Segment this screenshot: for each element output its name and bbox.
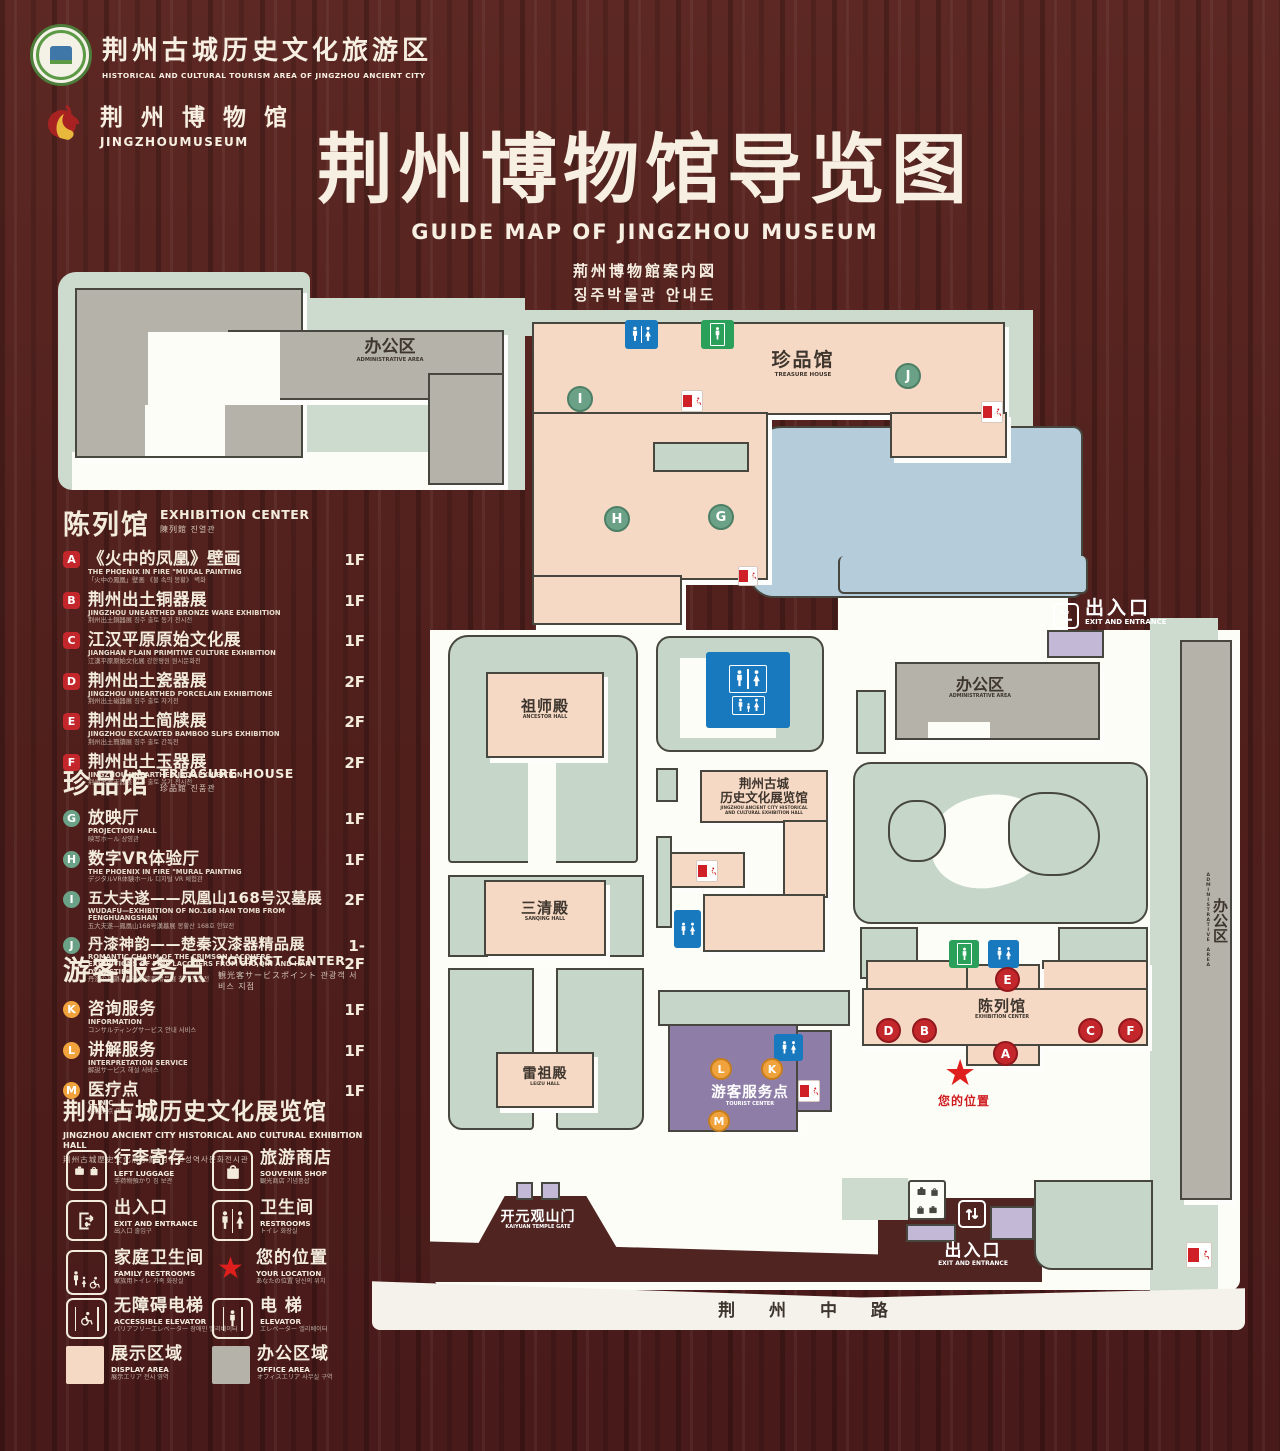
- legend-item-B: B 荆州出土铜器展JINGZHOU UNEARTHED BRONZE WARE …: [63, 591, 365, 626]
- map-marker-H: H: [604, 506, 630, 532]
- museum-logo: [40, 94, 92, 146]
- legend-item-D: D 荆州出土瓷器展JINGZHOU UNEARTHED PORCELAIN EX…: [63, 672, 365, 707]
- section-title-tourist: 游客服务点: [63, 949, 208, 988]
- legend-restrooms: 卫生间RESTROOMSトイレ 화장실: [212, 1200, 362, 1241]
- page-title-ja: 荊州博物館案内図: [250, 260, 1040, 281]
- legend-item-G: G 放映厅PROJECTION HALL映写ホール 상영관 1F: [63, 809, 365, 844]
- restrooms-family-sign: [706, 652, 790, 728]
- building-treasure-bottom-step: [532, 575, 682, 625]
- item-badge: A: [63, 551, 80, 568]
- garden-island: [1008, 792, 1100, 876]
- label-leizu-hall: 雷祖殿 LEIZU HALL: [498, 1066, 592, 1087]
- legend-your-location: ★ 您的位置YOUR LOCATIONあなたの位置 당신의 위치: [212, 1250, 362, 1287]
- your-location-icon: ★: [944, 1056, 976, 1092]
- accessible-elevator-icon: [981, 401, 1003, 423]
- legend-item-K: K 咨询服务INFORMATIONコンサルティングサービス 안내 서비스 1F: [63, 1000, 365, 1035]
- label-road: 荆 州 中 路: [660, 1296, 960, 1321]
- map-marker-M: M: [708, 1110, 730, 1132]
- legend-item-L: L 讲解服务INTERPRETATION SERVICE解説サービス 해설 서비…: [63, 1041, 365, 1076]
- office-area-swatch: [212, 1346, 250, 1384]
- hall-title-en: JINGZHOU ANCIENT CITY HISTORICAL AND CUL…: [63, 1130, 383, 1150]
- mint-block-exit-right: [1034, 1180, 1153, 1270]
- family-restrooms-icon: [732, 696, 765, 715]
- page-title: 荆州博物馆导览图: [250, 108, 1040, 218]
- legend-item-H: H 数字VR体验厅THE PHOENIX IN FIRE "MURAL PAIN…: [63, 850, 365, 885]
- legend-family-restrooms: 家庭卫生间FAMILY RESTROOMS家族用トイレ 가족 화장실: [66, 1250, 216, 1295]
- display-area-swatch: [66, 1346, 104, 1384]
- tourism-area-name-en: HISTORICAL AND CULTURAL TOURISM AREA OF …: [102, 71, 432, 80]
- label-ancestor-hall: 祖师殿 ANCESTOR HALL: [488, 698, 602, 721]
- label-exit-top: 出入口 EXIT AND ENTRANCE: [1085, 598, 1205, 627]
- exit-entrance-icon: [1053, 603, 1079, 629]
- entrance-gate-block: [906, 1224, 956, 1242]
- page-title-en: GUIDE MAP OF JINGZHOU MUSEUM: [250, 220, 1040, 244]
- tourism-area-logo: [30, 24, 92, 86]
- legend-accessible-elevator: 无障碍电梯ACCESSIBLE ELEVATORバリアフリーエレベーター 장애인…: [66, 1298, 216, 1339]
- map-marker-E: E: [995, 967, 1020, 992]
- corridor-ancestor: [528, 752, 556, 864]
- pond-lower: [838, 556, 1088, 594]
- legend-item-C: C 江汉平原原始文化展JIANGHAN PLAIN PRIMITIVE CULT…: [63, 631, 365, 666]
- hall-title-zh: 荆州古城历史文化展览馆: [63, 1092, 383, 1126]
- left-luggage-icon: [66, 1150, 107, 1191]
- mint-corner-exit: [842, 1178, 908, 1220]
- souvenir-shop-icon: [212, 1150, 253, 1191]
- accessible-elevator-icon: [1186, 1242, 1212, 1268]
- mint-block-mid: [653, 442, 749, 472]
- map-marker-K: K: [761, 1058, 783, 1080]
- section-title-exhibition-sub: 陳列館 진열관: [160, 524, 309, 535]
- mint-corner-exh: [656, 768, 678, 802]
- building-exhibition-hall-bottom: [703, 894, 825, 952]
- entrance-gate-block: [1047, 630, 1104, 658]
- label-treasure-house: 珍品馆 TREASURE HOUSE: [745, 350, 861, 378]
- map-marker-G: G: [708, 504, 734, 530]
- section-title-exhibition: 陈列馆: [63, 503, 150, 542]
- elevator-icon: [949, 940, 979, 968]
- family-restrooms-icon: [66, 1250, 107, 1295]
- map-marker-C: C: [1078, 1018, 1103, 1043]
- legend-left-luggage: 行李寄存LEFT LUGGAGE手荷物預かり 짐 보관: [66, 1150, 216, 1191]
- legend-exhibition-section: 陈列馆 EXHIBITION CENTER 陳列館 진열관 A 《火中的凤凰》壁…: [63, 503, 365, 793]
- section-title-treasure: 珍品馆: [63, 762, 150, 801]
- map-marker-D: D: [876, 1018, 901, 1043]
- label-your-location: 您的位置: [922, 1092, 1006, 1109]
- mint-block-tourist-top: [658, 990, 850, 1026]
- map-marker-J: J: [895, 363, 921, 389]
- your-location-icon: ★: [212, 1250, 249, 1287]
- building-treasure-left-wing: [532, 412, 768, 580]
- map-marker-A: A: [993, 1041, 1018, 1066]
- map-marker-B: B: [912, 1018, 937, 1043]
- label-admin-top-left: 办公区 ADMINISTRATIVE AREA: [325, 338, 455, 364]
- restrooms-icon: [774, 1034, 803, 1061]
- section-title-exhibition-en: EXHIBITION CENTER: [160, 507, 309, 522]
- restrooms-icon: [625, 320, 658, 349]
- label-sanqing-hall: 三清殿 SANQING HALL: [486, 900, 604, 923]
- gate-block: [516, 1182, 533, 1200]
- accessible-elevator-icon: [681, 390, 703, 412]
- label-exhibition-center: 陈列馆 EXHIBITION CENTER: [946, 998, 1058, 1021]
- tourism-area-name: 荆州古城历史文化旅游区: [102, 30, 432, 67]
- accessible-elevator-icon: [66, 1298, 107, 1339]
- legend-office-area: 办公区域OFFICE AREAオフィスエリア 사무실 구역: [212, 1346, 362, 1384]
- building-admin-top-left-leg: [428, 373, 504, 485]
- label-exhibition-hall: 荆州古城 历史文化展览馆 JINGZHOU ANCIENT CITY HISTO…: [700, 777, 828, 815]
- accessible-elevator-icon: [738, 566, 758, 586]
- accessible-elevator-icon: [696, 860, 718, 882]
- label-exit-bottom: 出入口 EXIT AND ENTRANCE: [918, 1242, 1028, 1267]
- restrooms-icon: [674, 910, 701, 948]
- map-marker-F: F: [1118, 1018, 1143, 1043]
- guide-map-poster: { "header": { "logo1": {"zh": "荆州古城历史文化旅…: [0, 0, 1280, 1451]
- label-admin-right: 办公区 ADMINISTRATIVE AREA: [915, 676, 1045, 700]
- map-marker-I: I: [567, 386, 593, 412]
- restrooms-icon: [988, 940, 1019, 968]
- exit-entrance-icon: [958, 1200, 986, 1228]
- courtyard-cut-1: [148, 332, 280, 405]
- building-admin-right: [895, 662, 1100, 740]
- legend-display-area: 展示区域DISPLAY AREA展示エリア 전시 영역: [66, 1346, 216, 1384]
- entrance-gate-block: [990, 1206, 1034, 1240]
- elevator-icon: [212, 1298, 253, 1339]
- legend-item-A: A 《火中的凤凰》壁画THE PHOENIX IN FIRE "MURAL PA…: [63, 550, 365, 585]
- legend-item-I: I 五大夫遂——凤凰山168号汉墓展WUDAFU—EXHIBITION OF N…: [63, 890, 365, 930]
- map-marker-L: L: [710, 1058, 732, 1080]
- building-admin-right-notch: [928, 722, 990, 738]
- legend-souvenir-shop: 旅游商店SOUVENIR SHOP観光商店 기념품샵: [212, 1150, 362, 1191]
- courtyard-cut-2: [145, 405, 225, 456]
- legend-elevator: 电 梯ELEVATORエレベーター 엘리베이터: [212, 1298, 362, 1339]
- garden-island-2: [888, 800, 946, 862]
- left-luggage-icon: [908, 1180, 946, 1220]
- exit-entrance-icon: [66, 1200, 107, 1241]
- legend-item-E: E 荆州出土简牍展JINGZHOU EXCAVATED BAMBOO SLIPS…: [63, 712, 365, 747]
- tourism-area-logo-text: 荆州古城历史文化旅游区 HISTORICAL AND CULTURAL TOUR…: [102, 30, 432, 80]
- gate-block: [541, 1182, 560, 1200]
- label-tourist-center: 游客服务点 TOURIST CENTER: [690, 1086, 810, 1107]
- building-exhibition-hall-col: [783, 820, 828, 898]
- elevator-icon: [701, 320, 734, 349]
- restrooms-icon: [212, 1200, 253, 1241]
- label-gate: 开元观山门 KAIYUAN TEMPLE GATE: [468, 1210, 608, 1231]
- label-admin-strip: 办公区 ADMINISTRATIVE AREA: [1184, 855, 1228, 985]
- legend-exit-entrance: 出入口EXIT AND ENTRANCE出入口 출입구: [66, 1200, 216, 1241]
- mint-accent-right: [856, 690, 886, 754]
